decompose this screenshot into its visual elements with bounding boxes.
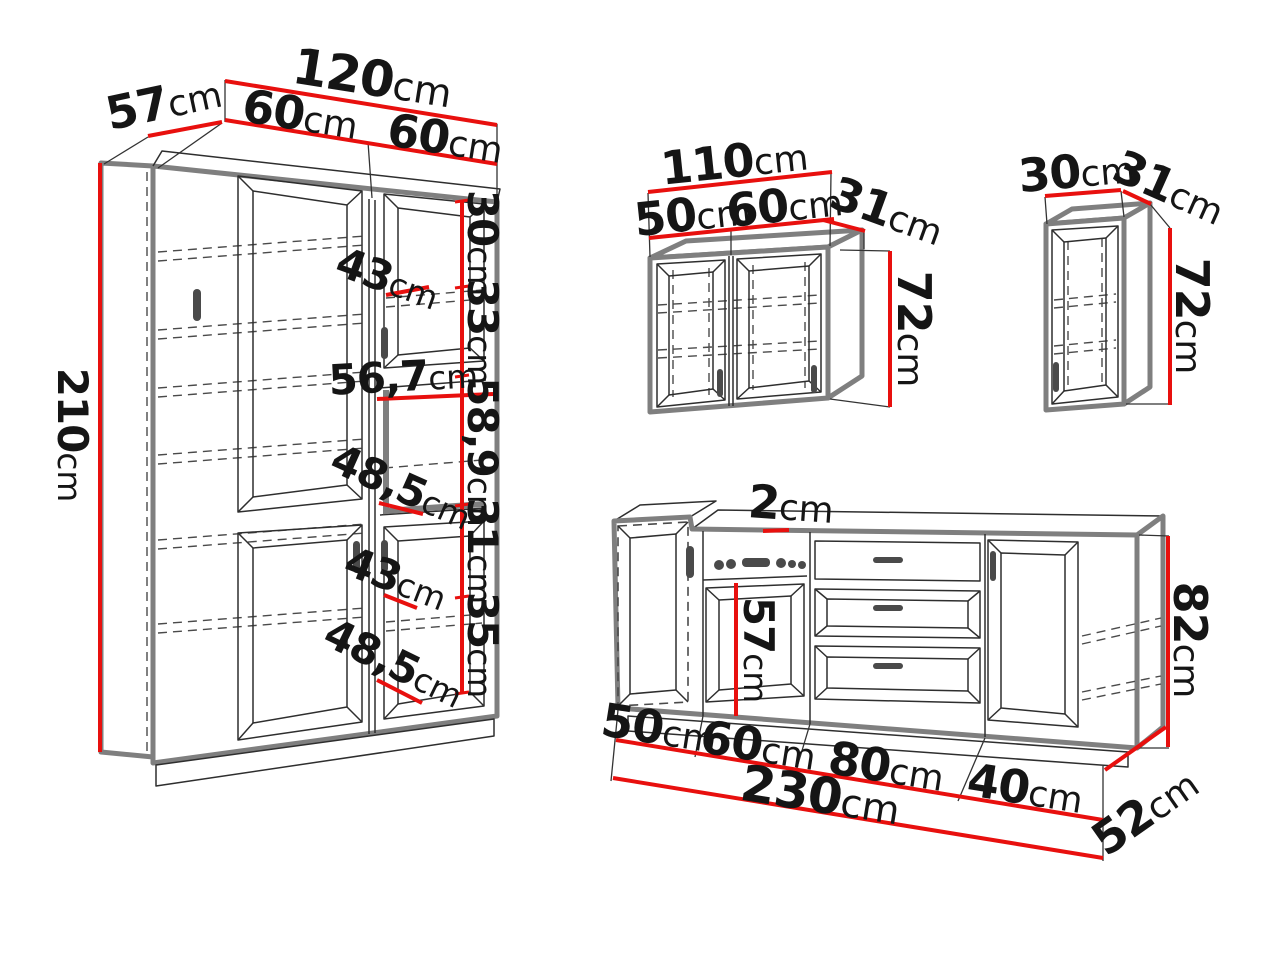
kitchen-dimensions-diagram: 57cm 120cm 60cm 60cm 210cm 30cm 33cm 43c… — [0, 0, 1272, 954]
drawer-middle-handle — [873, 605, 903, 611]
base-depth-label: 52cm — [1082, 755, 1209, 866]
dim-tick-worktop-2 — [763, 530, 789, 531]
wall-single-side-panel — [1124, 203, 1150, 404]
diagram-canvas: 57cm 120cm 60cm 60cm 210cm 30cm 33cm 43c… — [0, 0, 1272, 954]
tall-right-door-width-label: 60cm — [384, 102, 508, 174]
oven-knob-icon — [726, 559, 736, 569]
wall-single-height-label: 72cm — [1165, 258, 1219, 375]
tall-height-label: 210cm — [48, 368, 97, 503]
base-unit: 2cm 57cm 82cm 50cm 60cm 80cm 40cm 230cm … — [598, 474, 1217, 866]
wall-double-front — [650, 247, 828, 412]
wall-cabinet-single: 30cm 31cm 72cm — [1016, 139, 1234, 410]
base-right-door-handle — [990, 551, 996, 581]
oven-knob-icon — [798, 561, 806, 569]
oven-knob-icon — [788, 560, 796, 568]
wall-single-door-handle — [1053, 362, 1059, 392]
drawer-top-handle — [873, 557, 903, 563]
base-height-label: 82cm — [1163, 582, 1217, 699]
oven-knob-icon — [776, 558, 786, 568]
tall-lower-shelf-height-label: 31cm — [458, 498, 507, 604]
tall-cabinet-side-panel — [101, 163, 153, 757]
base-worktop-thickness-label: 2cm — [746, 474, 835, 534]
oven-display — [742, 558, 770, 567]
tall-depth-label: 57cm — [101, 64, 226, 141]
wall-double-height-label: 72cm — [887, 271, 941, 388]
wall-double-left-door-handle — [717, 369, 723, 397]
wall-double-side-panel — [828, 230, 862, 398]
base-side-panel — [1137, 516, 1163, 748]
tall-upper-left-door-handle — [193, 289, 201, 321]
base-left-door-handle — [686, 546, 694, 578]
tall-cabinet: 57cm 120cm 60cm 60cm 210cm 30cm 33cm 43c… — [48, 37, 507, 786]
drawer-bottom-handle — [873, 663, 903, 669]
wall-cabinet-double: 110cm 50cm 60cm 31cm 72cm — [631, 127, 951, 412]
oven-knob-icon — [714, 560, 724, 570]
wall-double-right-door-handle — [811, 365, 817, 393]
